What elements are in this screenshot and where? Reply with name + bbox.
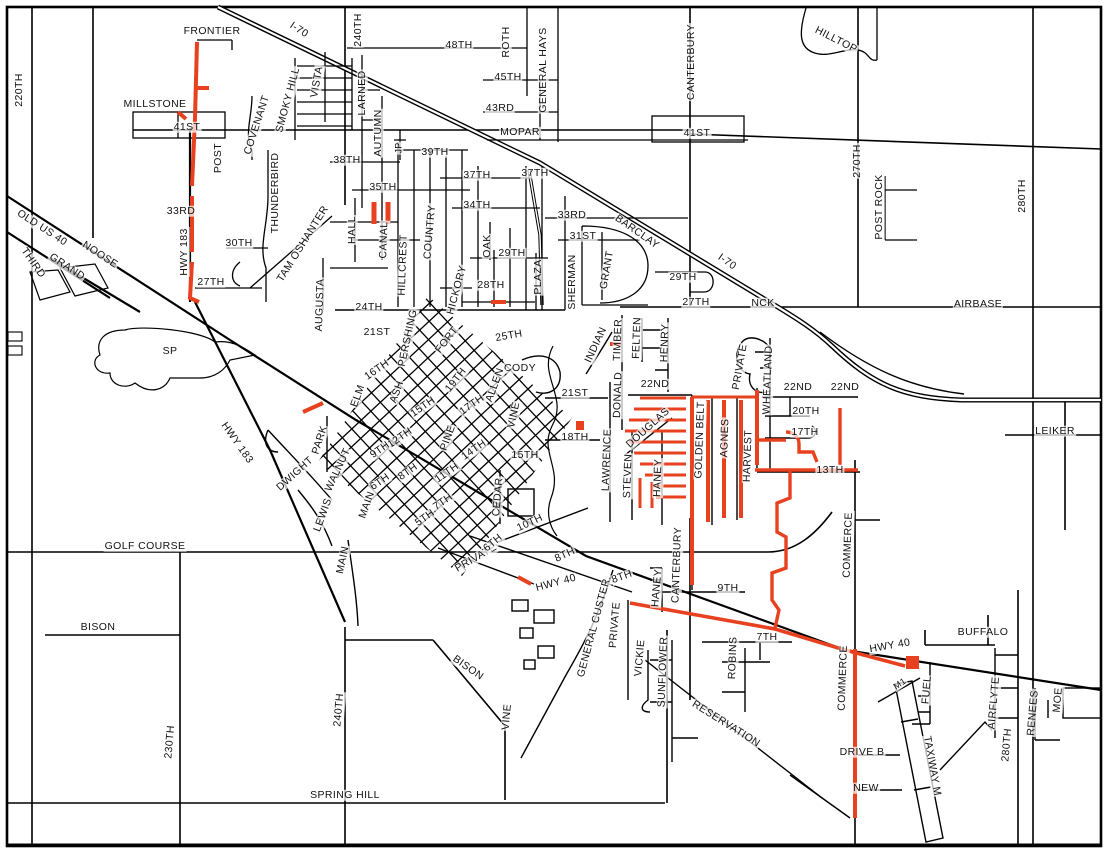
- road-network-canvas: [0, 0, 1108, 853]
- map-border: [7, 7, 1101, 846]
- downtown-grid-roads: [272, 261, 619, 610]
- airport-roads: [790, 520, 1101, 842]
- section-roads: [7, 7, 1101, 846]
- city-street-map: FRONTIERI-70240TH48THROTHGENERAL HAYS45T…: [0, 0, 1108, 853]
- highway-roads: [7, 128, 1101, 690]
